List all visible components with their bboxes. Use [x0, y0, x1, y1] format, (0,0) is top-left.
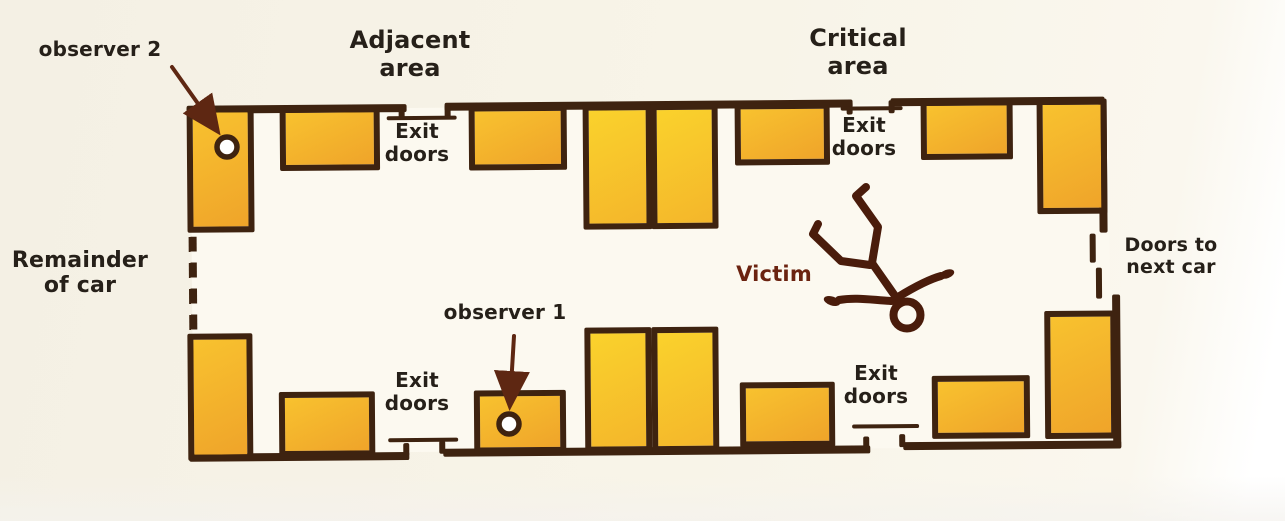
seat-top-corner-left	[187, 106, 255, 233]
observer-1-label: observer 1	[435, 301, 575, 324]
train-car-drawing	[0, 0, 1285, 526]
photo-edge-fade	[0, 476, 1285, 521]
seat-bottom-corner-left	[187, 333, 253, 461]
seat-top-facing-pair-a	[583, 104, 653, 230]
exit-doors-label-bottom-left: Exit doors	[367, 369, 467, 415]
seat-bottom-facing-pair-b	[651, 327, 719, 453]
seat-bottom-1	[279, 391, 376, 457]
critical-area-label: Critical area	[778, 25, 938, 80]
bottom-left-exit-doorframe-tick	[403, 443, 409, 456]
seat-top-facing-pair-b	[651, 104, 719, 230]
doors-to-next-car-label: Doors to next car	[1116, 235, 1226, 279]
remainder-of-car-label: Remainder of car	[4, 248, 156, 299]
seat-bottom-4	[932, 375, 1030, 439]
seat-bottom-corner-right	[1044, 310, 1117, 439]
seat-bottom-3	[740, 382, 836, 448]
car-continuation-dashed-boundary	[189, 237, 198, 335]
door-to-next-car-leaf-lower	[1096, 268, 1102, 299]
bottom-left-exit-doorframe-tick	[439, 441, 445, 454]
seat-top-2	[469, 105, 568, 171]
seat-top-1	[280, 106, 380, 171]
bottom-wall-segment-right	[903, 440, 1121, 450]
subway-car-diagram: observer 2 Adjacent area Critical area E…	[0, 0, 1285, 521]
exit-doors-label-bottom-right: Exit doors	[826, 362, 926, 408]
bottom-right-exit-doorframe-tick	[899, 434, 905, 447]
exit-doors-label-top-right: Exit doors	[814, 114, 914, 160]
seat-bottom-facing-pair-a	[584, 327, 652, 453]
exit-doors-label-top-left: Exit doors	[367, 120, 467, 166]
seat-bottom-2-observer-seat	[474, 390, 566, 454]
exit-door-line-top-right	[841, 106, 903, 110]
seat-top-corner-right	[1037, 99, 1108, 215]
exit-door-line-bottom-left	[388, 438, 458, 443]
observer-2-label: observer 2	[30, 38, 170, 61]
door-to-next-car-leaf-upper	[1090, 234, 1096, 263]
seat-top-4	[921, 99, 1013, 160]
exit-door-line-bottom-right	[852, 424, 919, 429]
victim-label: Victim	[730, 262, 818, 286]
bottom-right-exit-doorframe-tick	[863, 436, 869, 449]
adjacent-area-label: Adjacent area	[330, 27, 490, 82]
